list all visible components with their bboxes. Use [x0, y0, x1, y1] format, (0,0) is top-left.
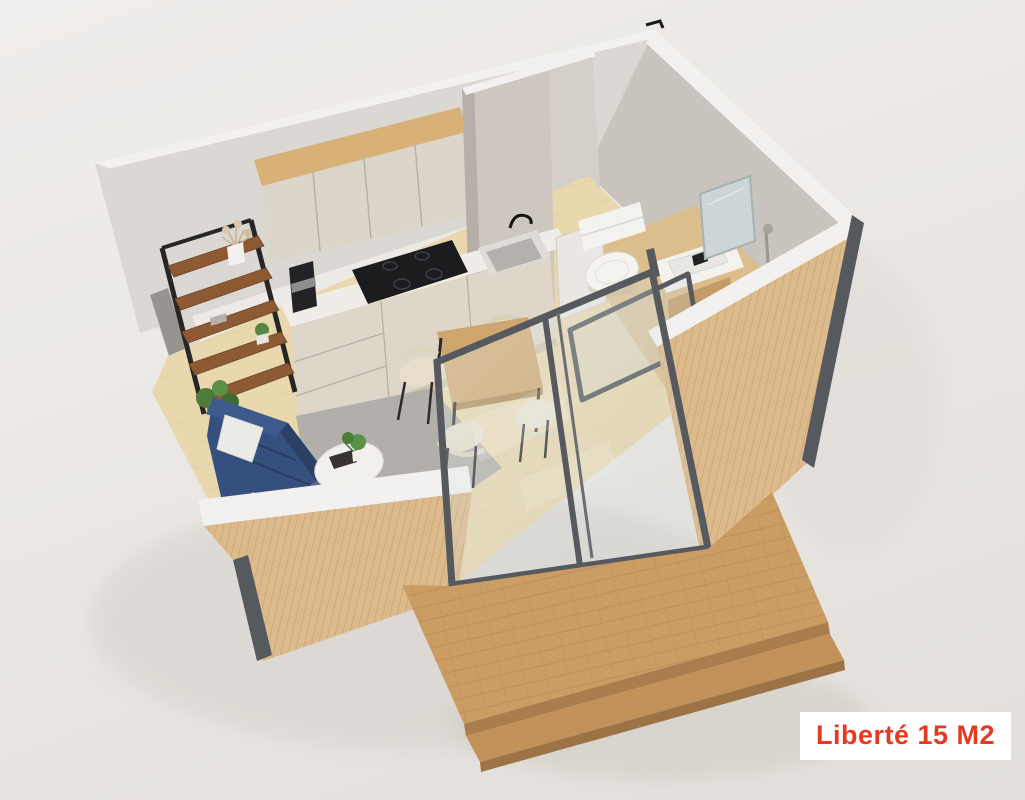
floorplan-render [0, 0, 1025, 800]
corner-bracket [646, 21, 663, 28]
render-canvas: Liberté 15 M2 [0, 0, 1025, 800]
shelf-plant [255, 323, 269, 345]
plan-size-label: Liberté 15 M2 [800, 712, 1011, 760]
coffee-machine [289, 261, 317, 313]
plan-size-text: Liberté 15 M2 [816, 720, 995, 751]
